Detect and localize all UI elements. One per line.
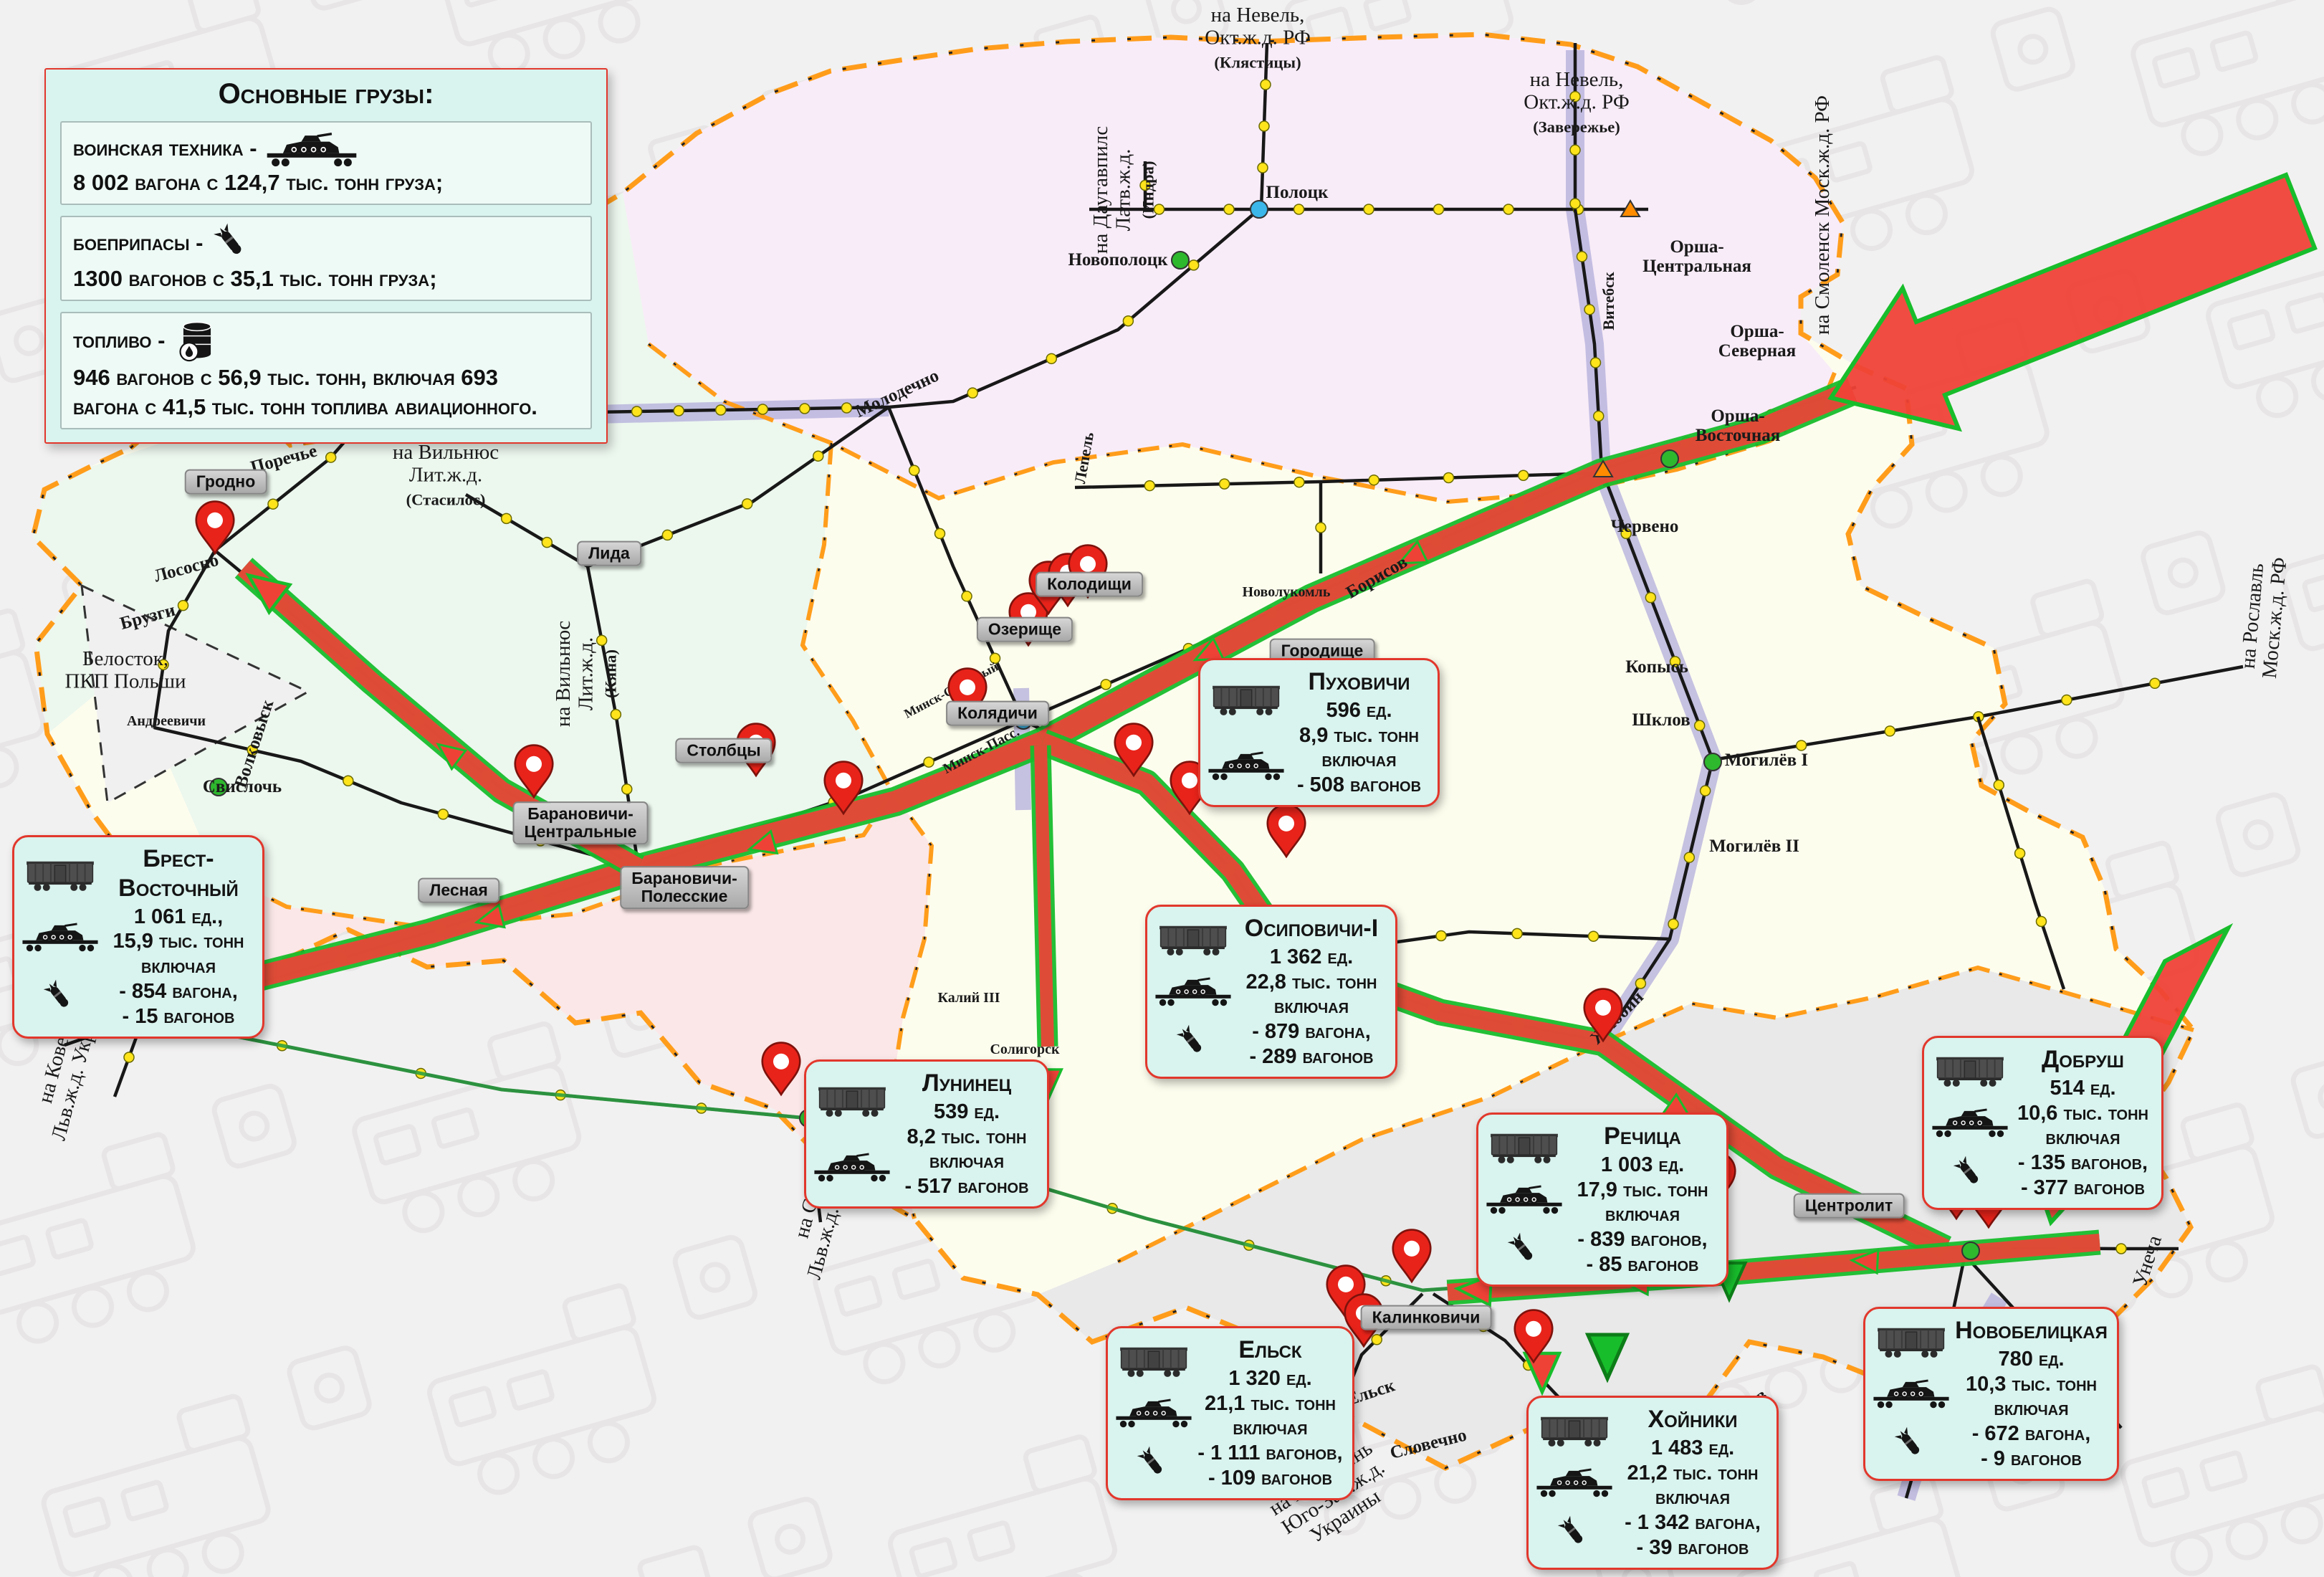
station-dot bbox=[1220, 479, 1230, 489]
station-label: Полоцк bbox=[1266, 183, 1329, 202]
station-dot bbox=[1918, 1434, 1928, 1444]
station-dot bbox=[909, 465, 919, 475]
station-dot bbox=[1797, 740, 1807, 751]
station-dot bbox=[1261, 80, 1271, 90]
station-dot bbox=[935, 528, 945, 538]
station-dot bbox=[1189, 260, 1199, 270]
legend-item-label: воинская техника - bbox=[73, 134, 257, 163]
station-dot bbox=[597, 635, 607, 645]
station-dot bbox=[742, 499, 752, 509]
station-label: Новолукомль bbox=[1243, 584, 1331, 600]
station-label: Могилёв I bbox=[1725, 751, 1808, 770]
station-dot bbox=[2062, 695, 2072, 705]
station-label: Хойники bbox=[1584, 1399, 1658, 1418]
station-dot bbox=[716, 405, 726, 415]
station-dot bbox=[2067, 1367, 2077, 1377]
station-dot bbox=[1503, 204, 1514, 214]
station-label: Новополоцк bbox=[1068, 250, 1168, 270]
station-dot bbox=[1224, 204, 1234, 214]
station-label: Солигорск bbox=[990, 1042, 1060, 1057]
station-dot bbox=[1436, 930, 1446, 940]
station-dot bbox=[841, 403, 851, 413]
railway-map-page: МолодечноПолоцкНовополоцкВитебскОрша-Цен… bbox=[0, 0, 2324, 1577]
station-dot bbox=[967, 388, 977, 398]
station-dot bbox=[1570, 145, 1580, 155]
green-station-dot bbox=[1704, 753, 1721, 771]
station-label: Витебск bbox=[1599, 272, 1617, 330]
station-dot bbox=[1101, 680, 1111, 690]
station-dot bbox=[99, 1026, 109, 1037]
station-dot bbox=[632, 406, 642, 416]
station-dot bbox=[2036, 916, 2046, 926]
edge-label: на Невель,Окт.ж.д. РФ(Завережье) bbox=[1524, 68, 1629, 136]
station-dot bbox=[343, 776, 353, 786]
station-dot bbox=[1360, 941, 1370, 951]
station-dot bbox=[1258, 163, 1268, 173]
legend-item-label: топливо - bbox=[73, 326, 165, 356]
legend-panel: Основные грузы: воинская техника - 8 002… bbox=[44, 68, 608, 444]
station-dot bbox=[542, 538, 552, 548]
station-dot bbox=[1046, 353, 1056, 363]
station-dot bbox=[1259, 121, 1269, 131]
station-dot bbox=[1885, 726, 1895, 736]
station-dot bbox=[1144, 481, 1154, 491]
station-dot bbox=[1584, 305, 1594, 315]
station-dot bbox=[1635, 978, 1645, 988]
station-label: Могилёв II bbox=[1709, 837, 1799, 856]
station-dot bbox=[1123, 316, 1133, 326]
station-dot bbox=[1570, 199, 1580, 209]
station-dot bbox=[1478, 1321, 1488, 1331]
station-dot bbox=[962, 591, 972, 601]
legend-item-value: 8 002 вагона с 124,7 тыс. тонн груза; bbox=[73, 168, 579, 198]
station-dot bbox=[1316, 523, 1326, 533]
station-dot bbox=[1519, 470, 1529, 480]
station-label: Шклов bbox=[1632, 710, 1690, 730]
legend-title: Основные грузы: bbox=[60, 78, 592, 110]
station-dot bbox=[1512, 928, 1522, 938]
station-dot bbox=[1364, 204, 1374, 214]
station-dot bbox=[535, 836, 545, 846]
station-dot bbox=[502, 513, 512, 523]
legend-item-fuel: топливо - 946 вагонов с 56,9 тыс. тонн, … bbox=[60, 312, 592, 429]
green-station-dot bbox=[1172, 252, 1189, 269]
station-label: Копысь bbox=[1625, 657, 1688, 677]
legend-item-value: 1300 вагонов с 35,1 тыс. тонн груза; bbox=[73, 265, 579, 294]
station-label: Андреевичи bbox=[127, 713, 206, 729]
station-dot bbox=[178, 601, 188, 611]
station-dot bbox=[2116, 1244, 2126, 1254]
station-dot bbox=[1946, 1316, 1956, 1326]
station-dot bbox=[662, 530, 672, 540]
green-station-dot bbox=[1561, 1400, 1578, 1417]
green-station-dot bbox=[800, 1110, 817, 1127]
legend-item-value: 946 вагонов с 56,9 тыс. тонн, включая 69… bbox=[73, 363, 579, 393]
edge-label: на Невель,Окт.ж.д. РФ(Клястицы) bbox=[1205, 4, 1310, 72]
station-dot bbox=[1668, 919, 1678, 929]
station-dot bbox=[326, 452, 336, 462]
station-dot bbox=[800, 404, 810, 414]
station-dot bbox=[924, 757, 934, 767]
station-dot bbox=[2150, 678, 2160, 688]
green-station-dot bbox=[1962, 1242, 1979, 1259]
blue-station-dot bbox=[1251, 201, 1268, 218]
station-dot bbox=[124, 1052, 134, 1062]
station-dot bbox=[1369, 475, 1379, 485]
edge-label: на Смоленск Моск.ж.д. РФ bbox=[1811, 95, 1834, 335]
station-dot bbox=[1577, 252, 1587, 262]
station-label: Калий III bbox=[937, 990, 1000, 1006]
legend-item-military-equipment: воинская техника - 8 002 вагона с 124,7 … bbox=[60, 121, 592, 205]
legend-item-label: боеприпасы - bbox=[73, 229, 203, 258]
station-dot bbox=[2016, 1312, 2026, 1322]
station-dot bbox=[1994, 780, 2004, 790]
station-dot bbox=[268, 499, 278, 509]
station-dot bbox=[611, 710, 621, 720]
station-dot bbox=[674, 406, 684, 416]
station-dot bbox=[1443, 472, 1453, 482]
station-dot bbox=[1933, 1376, 1943, 1386]
station-dot bbox=[1695, 720, 1705, 730]
station-dot bbox=[622, 784, 632, 794]
station-dot bbox=[1294, 477, 1304, 487]
station-dot bbox=[1294, 204, 1304, 214]
station-dot bbox=[438, 809, 448, 819]
station-dot bbox=[2015, 848, 2025, 858]
station-dot bbox=[1594, 411, 1604, 421]
corridor-band bbox=[1041, 745, 1048, 1047]
station-dot bbox=[757, 404, 768, 414]
blue-station-dot bbox=[1015, 712, 1032, 729]
station-dot bbox=[1645, 593, 1655, 603]
station-dot bbox=[1434, 204, 1444, 214]
green-station-dot bbox=[1661, 450, 1678, 467]
station-dot bbox=[1589, 931, 1599, 941]
station-dot bbox=[1372, 1335, 1382, 1345]
station-dot bbox=[1590, 358, 1600, 368]
station-dot bbox=[1701, 786, 1711, 796]
fuel-barrel-icon bbox=[173, 319, 221, 363]
station-dot bbox=[813, 451, 823, 461]
legend-item-value2: вагона с 41,5 тыс. тонн топлива авиацион… bbox=[73, 393, 579, 422]
station-dot bbox=[1684, 852, 1694, 862]
tank-flatcar-icon bbox=[266, 128, 358, 168]
edge-label: Белосток,ПКП Польши bbox=[64, 647, 186, 692]
legend-item-ammunition: боеприпасы - 1300 вагонов с 35,1 тыс. то… bbox=[60, 216, 592, 301]
station-label: Червено bbox=[1611, 517, 1679, 536]
